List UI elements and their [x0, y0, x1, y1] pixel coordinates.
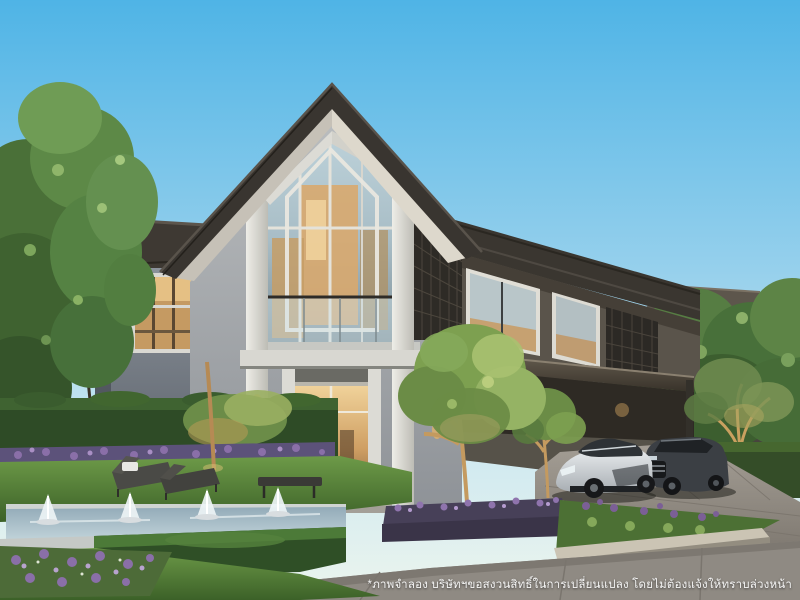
- rendering-canvas: [0, 0, 800, 600]
- watermark-disclaimer-text: *ภาพจำลอง บริษัทฯขอสงวนสิทธิ์ในการเปลี่ย…: [368, 576, 792, 594]
- flower-bed-left: [0, 546, 172, 598]
- architectural-rendering: *ภาพจำลอง บริษัทฯขอสงวนสิทธิ์ในการเปลี่ย…: [0, 0, 800, 600]
